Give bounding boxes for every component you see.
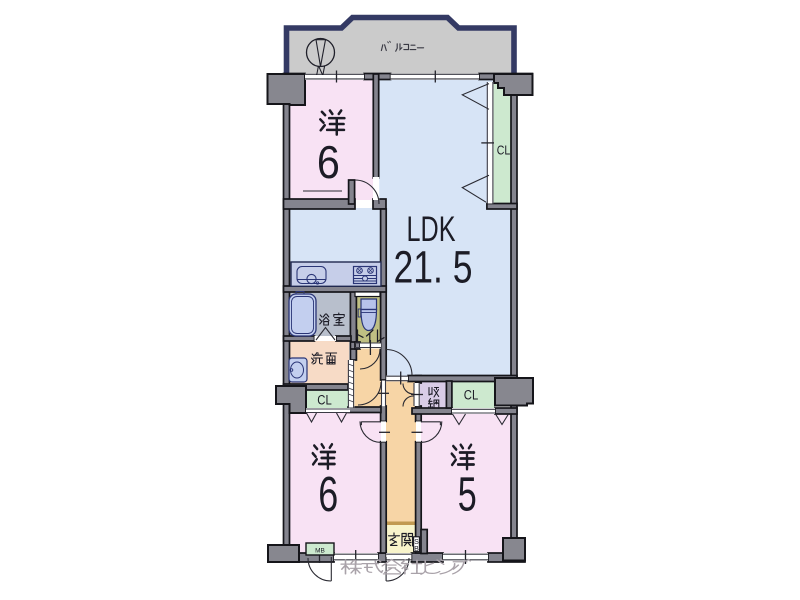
svg-text:6: 6 bbox=[318, 468, 338, 522]
svg-text:5: 5 bbox=[458, 469, 477, 522]
svg-text:CL: CL bbox=[317, 393, 332, 408]
svg-text:CL: CL bbox=[497, 144, 511, 158]
svg-text:N: N bbox=[316, 63, 326, 78]
svg-text:B: B bbox=[414, 546, 419, 553]
svg-text:CL: CL bbox=[464, 388, 479, 403]
svg-text:21. 5: 21. 5 bbox=[394, 242, 473, 293]
svg-text:MB: MB bbox=[315, 548, 325, 555]
svg-text:6: 6 bbox=[317, 136, 340, 188]
svg-text:S: S bbox=[414, 539, 419, 546]
